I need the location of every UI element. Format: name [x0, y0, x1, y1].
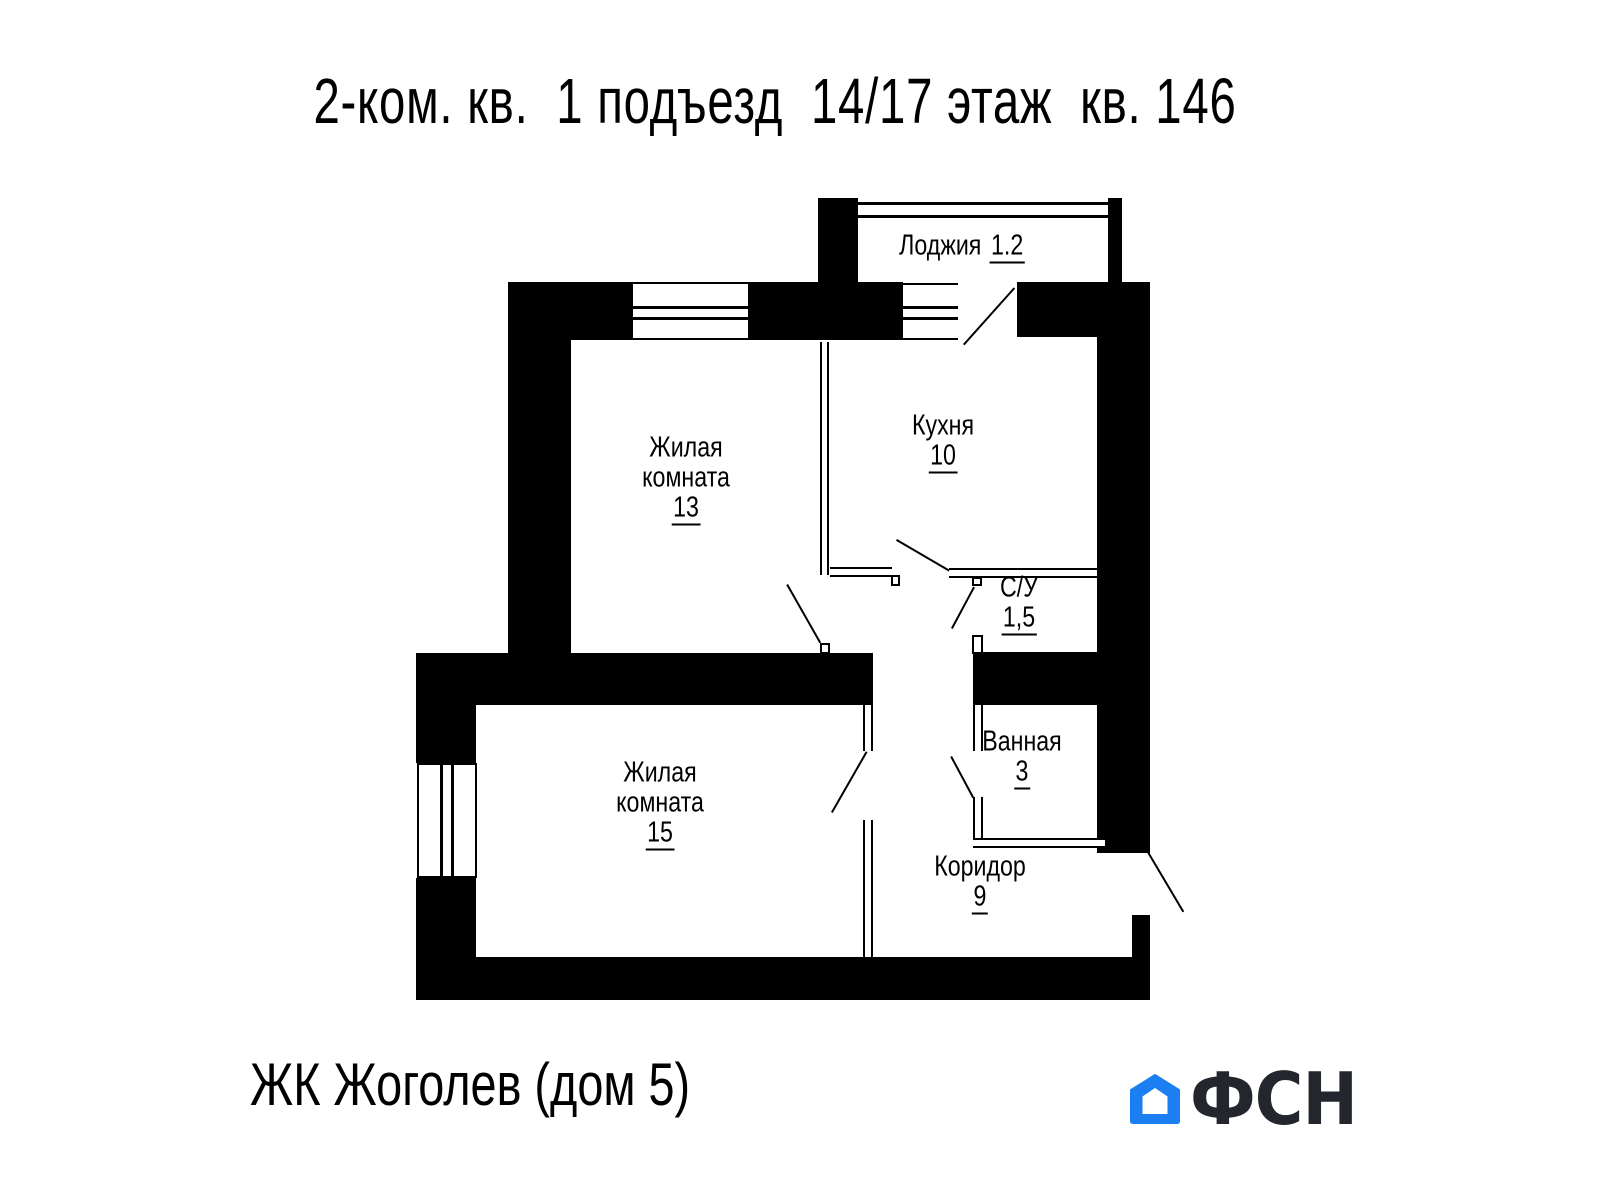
partition-bath-bottom: [973, 838, 1105, 848]
room-label-loggia: Лоджия 1.2: [899, 231, 1025, 264]
partition-corridor-upper: [863, 705, 873, 751]
room-name: Жилая: [616, 758, 704, 788]
wall: [818, 198, 858, 286]
plan-title: 2-ком. кв. 1 подъезд 14/17 этаж кв. 146: [313, 64, 1236, 138]
wall: [416, 653, 476, 763]
wall: [416, 653, 873, 705]
room-name: Коридор: [934, 852, 1026, 882]
room-name: комната: [642, 463, 730, 493]
room-label-kitchen: Кухня 10: [912, 411, 974, 474]
wc-door-swing: [951, 587, 975, 629]
entry-door-swing: [1147, 852, 1184, 912]
room13-window: [633, 282, 748, 340]
wall: [508, 282, 571, 653]
room-label-bath: Ванная 3: [982, 727, 1061, 790]
window-glass-line: [633, 306, 748, 309]
room-label-wc: С/У 1,5: [1000, 573, 1038, 636]
door-jamb-kitchen: [891, 575, 900, 586]
partition-kitchen-bottom: [830, 567, 892, 577]
window-glass-line: [903, 317, 958, 320]
window-glass-line: [633, 317, 748, 320]
room-area: 1.2: [989, 231, 1024, 264]
wall: [1097, 335, 1150, 853]
room-name: Жилая: [642, 433, 730, 463]
window-glass-line: [903, 306, 958, 309]
house-icon: [1128, 1072, 1182, 1126]
room15-door-swing: [831, 751, 868, 813]
room-label-room15: Жилая комната 15: [616, 758, 704, 851]
room-name: Кухня: [912, 411, 974, 441]
room-area: 13: [671, 493, 700, 526]
wall-segment-wc-left: [972, 635, 983, 654]
room-area: 10: [928, 441, 957, 474]
wall: [1017, 282, 1150, 337]
loggia-door-swing: [963, 287, 1015, 345]
brand-name: ФСН: [1190, 1068, 1357, 1130]
door-jamb-wc: [972, 577, 982, 586]
kitchen-loggia-window: [903, 283, 958, 340]
wall: [973, 652, 1150, 705]
partition-room13-kitchen: [820, 342, 829, 575]
window-glass-line: [451, 765, 454, 876]
door-jamb-room13: [820, 643, 830, 654]
room-label-corridor: Коридор 9: [934, 852, 1026, 915]
room15-window: [417, 763, 477, 878]
room-name: Ванная: [982, 727, 1061, 757]
brand-logo: ФСН: [1128, 1068, 1372, 1130]
room13-door-swing: [786, 584, 821, 643]
kitchen-door-swing: [896, 539, 950, 572]
wall: [748, 282, 903, 340]
room-label-room13: Жилая комната 13: [642, 433, 730, 526]
room-area: 1,5: [1001, 603, 1036, 636]
wall: [416, 957, 1150, 1000]
window-glass-line: [440, 765, 443, 876]
floor-plan-page: 2-ком. кв. 1 подъезд 14/17 этаж кв. 146: [0, 0, 1600, 1200]
room-name: Лоджия: [899, 231, 981, 261]
partition-corridor-lower: [863, 820, 873, 957]
room-name: С/У: [1000, 573, 1038, 603]
loggia-window: [858, 202, 1108, 218]
bath-door-swing: [950, 756, 974, 798]
wall: [1108, 198, 1122, 286]
room-name: комната: [616, 788, 704, 818]
complex-name: ЖК Жоголев (дом 5): [250, 1050, 690, 1119]
room-area: 15: [645, 818, 674, 851]
room-area: 9: [972, 882, 988, 915]
room-area: 3: [1014, 757, 1030, 790]
wall: [1132, 915, 1150, 959]
